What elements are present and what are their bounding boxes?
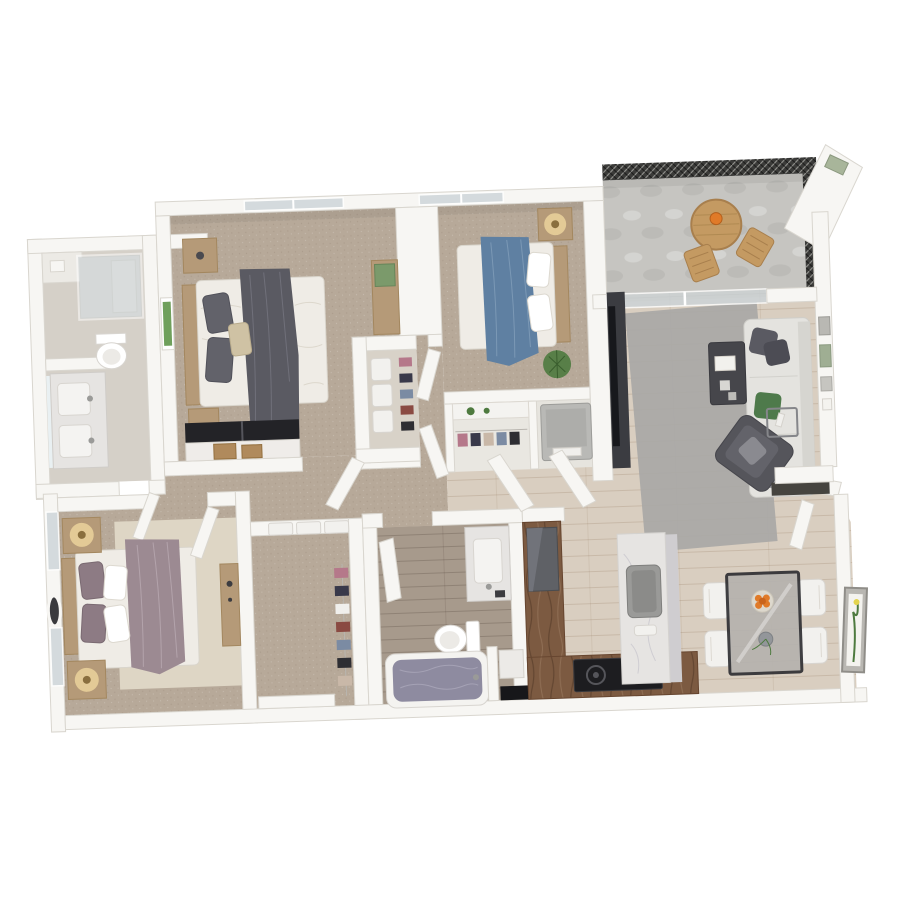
walk-in-closet-door [258, 694, 334, 709]
clothing-item [401, 421, 414, 430]
wall-frame-4 [822, 399, 831, 410]
island-tray [634, 625, 656, 636]
vanity-sink-2 [59, 425, 92, 458]
clothing-item [334, 568, 348, 578]
master-window-1 [46, 512, 60, 570]
coffee-table-decor [728, 392, 736, 400]
clothing-item [335, 586, 349, 596]
fruit-bowl [751, 590, 774, 613]
bed-1-pillow-accent [228, 322, 252, 356]
wall-frame-2 [820, 345, 832, 367]
bathroom-1-bottom-wall-b [149, 480, 165, 495]
island-sink-basin [631, 570, 656, 613]
bathroom-2-sink [473, 538, 503, 583]
wall-frame-3 [821, 377, 832, 391]
closet-top-box-3 [324, 521, 348, 534]
floorplan [25, 143, 881, 732]
master-pillow-mauve-2 [81, 604, 107, 643]
round-wall-mirror [48, 596, 61, 626]
shower-glass [77, 254, 143, 320]
clothing-item [338, 676, 352, 686]
kitchen-top-stub-wall [522, 507, 564, 522]
floor-plan-svg [0, 0, 900, 900]
storage-box-2 [372, 384, 393, 407]
storage-box-1 [371, 358, 392, 381]
sofa-pillow-gray-2 [763, 338, 791, 366]
clothing-item [336, 622, 350, 632]
master-wood-console [220, 563, 241, 646]
bathtub-water [392, 657, 482, 702]
clothing-item [337, 640, 351, 650]
clothing-item [400, 389, 413, 398]
coffee-table-books [715, 356, 735, 371]
wall-frame-1 [819, 317, 831, 335]
clothing-item [399, 357, 412, 366]
soap-dish [495, 590, 505, 597]
toilet-2-tank [466, 621, 480, 655]
entry-overhead-cabinet [775, 466, 834, 484]
linen-shelf-box [50, 260, 64, 271]
wood-crate-1 [214, 443, 237, 459]
bed-1-pillow-gray-2 [205, 337, 234, 383]
master-pillow-white-1 [103, 565, 127, 600]
closet-top-box-1 [268, 523, 292, 536]
clothing-item [509, 432, 519, 445]
laundry-closet-contents [540, 403, 592, 461]
desk-pinboard [374, 264, 395, 287]
bed-2-pillow-1 [526, 252, 551, 288]
clothing-item [457, 433, 467, 446]
clothing-item [400, 405, 413, 414]
closet-door-seam [242, 421, 243, 441]
closet-top-box-2 [296, 522, 320, 535]
storage-nook-opening [500, 685, 528, 700]
clothing-item [337, 658, 351, 668]
bedrooms-shared-wall [396, 206, 442, 335]
bathroom-2-top-wall-a [362, 513, 382, 528]
hall-closet-bottom-wall [356, 447, 420, 463]
washer-top [546, 408, 587, 447]
vanity-sink-1 [57, 383, 90, 416]
dining-wall-art [842, 588, 867, 673]
clothing-item [483, 432, 493, 445]
coffee-table-coaster [720, 380, 730, 390]
storage-box-3 [373, 410, 394, 433]
tub-partition [487, 646, 499, 700]
bedroom-2-doorjamb [428, 334, 442, 346]
master-pillow-mauve-1 [78, 561, 106, 600]
closet-shelf [452, 401, 529, 420]
coffee-table [708, 342, 746, 405]
clothing-item [399, 373, 412, 382]
kitchen-island [617, 532, 682, 684]
master-bed [61, 537, 200, 678]
slider-jamb-right [767, 287, 817, 303]
table-pot-icon [710, 212, 722, 224]
master-top-wall-b [207, 492, 235, 507]
master-top-wall-a [57, 494, 151, 511]
clothing-item [470, 433, 480, 446]
wood-crate-2 [242, 445, 262, 459]
bath-storage-box [499, 650, 524, 679]
coffee-table-top [708, 342, 746, 405]
bed-2-pillow-2 [527, 293, 554, 332]
master-window-2 [50, 628, 64, 686]
closet-divider [528, 401, 538, 469]
clothing-item [496, 432, 506, 445]
bathtub [385, 651, 489, 709]
bedroom-1-art [163, 302, 173, 346]
floor-plan-image [0, 0, 900, 900]
slider-jamb-left [593, 294, 607, 308]
clothing-item [335, 604, 349, 614]
